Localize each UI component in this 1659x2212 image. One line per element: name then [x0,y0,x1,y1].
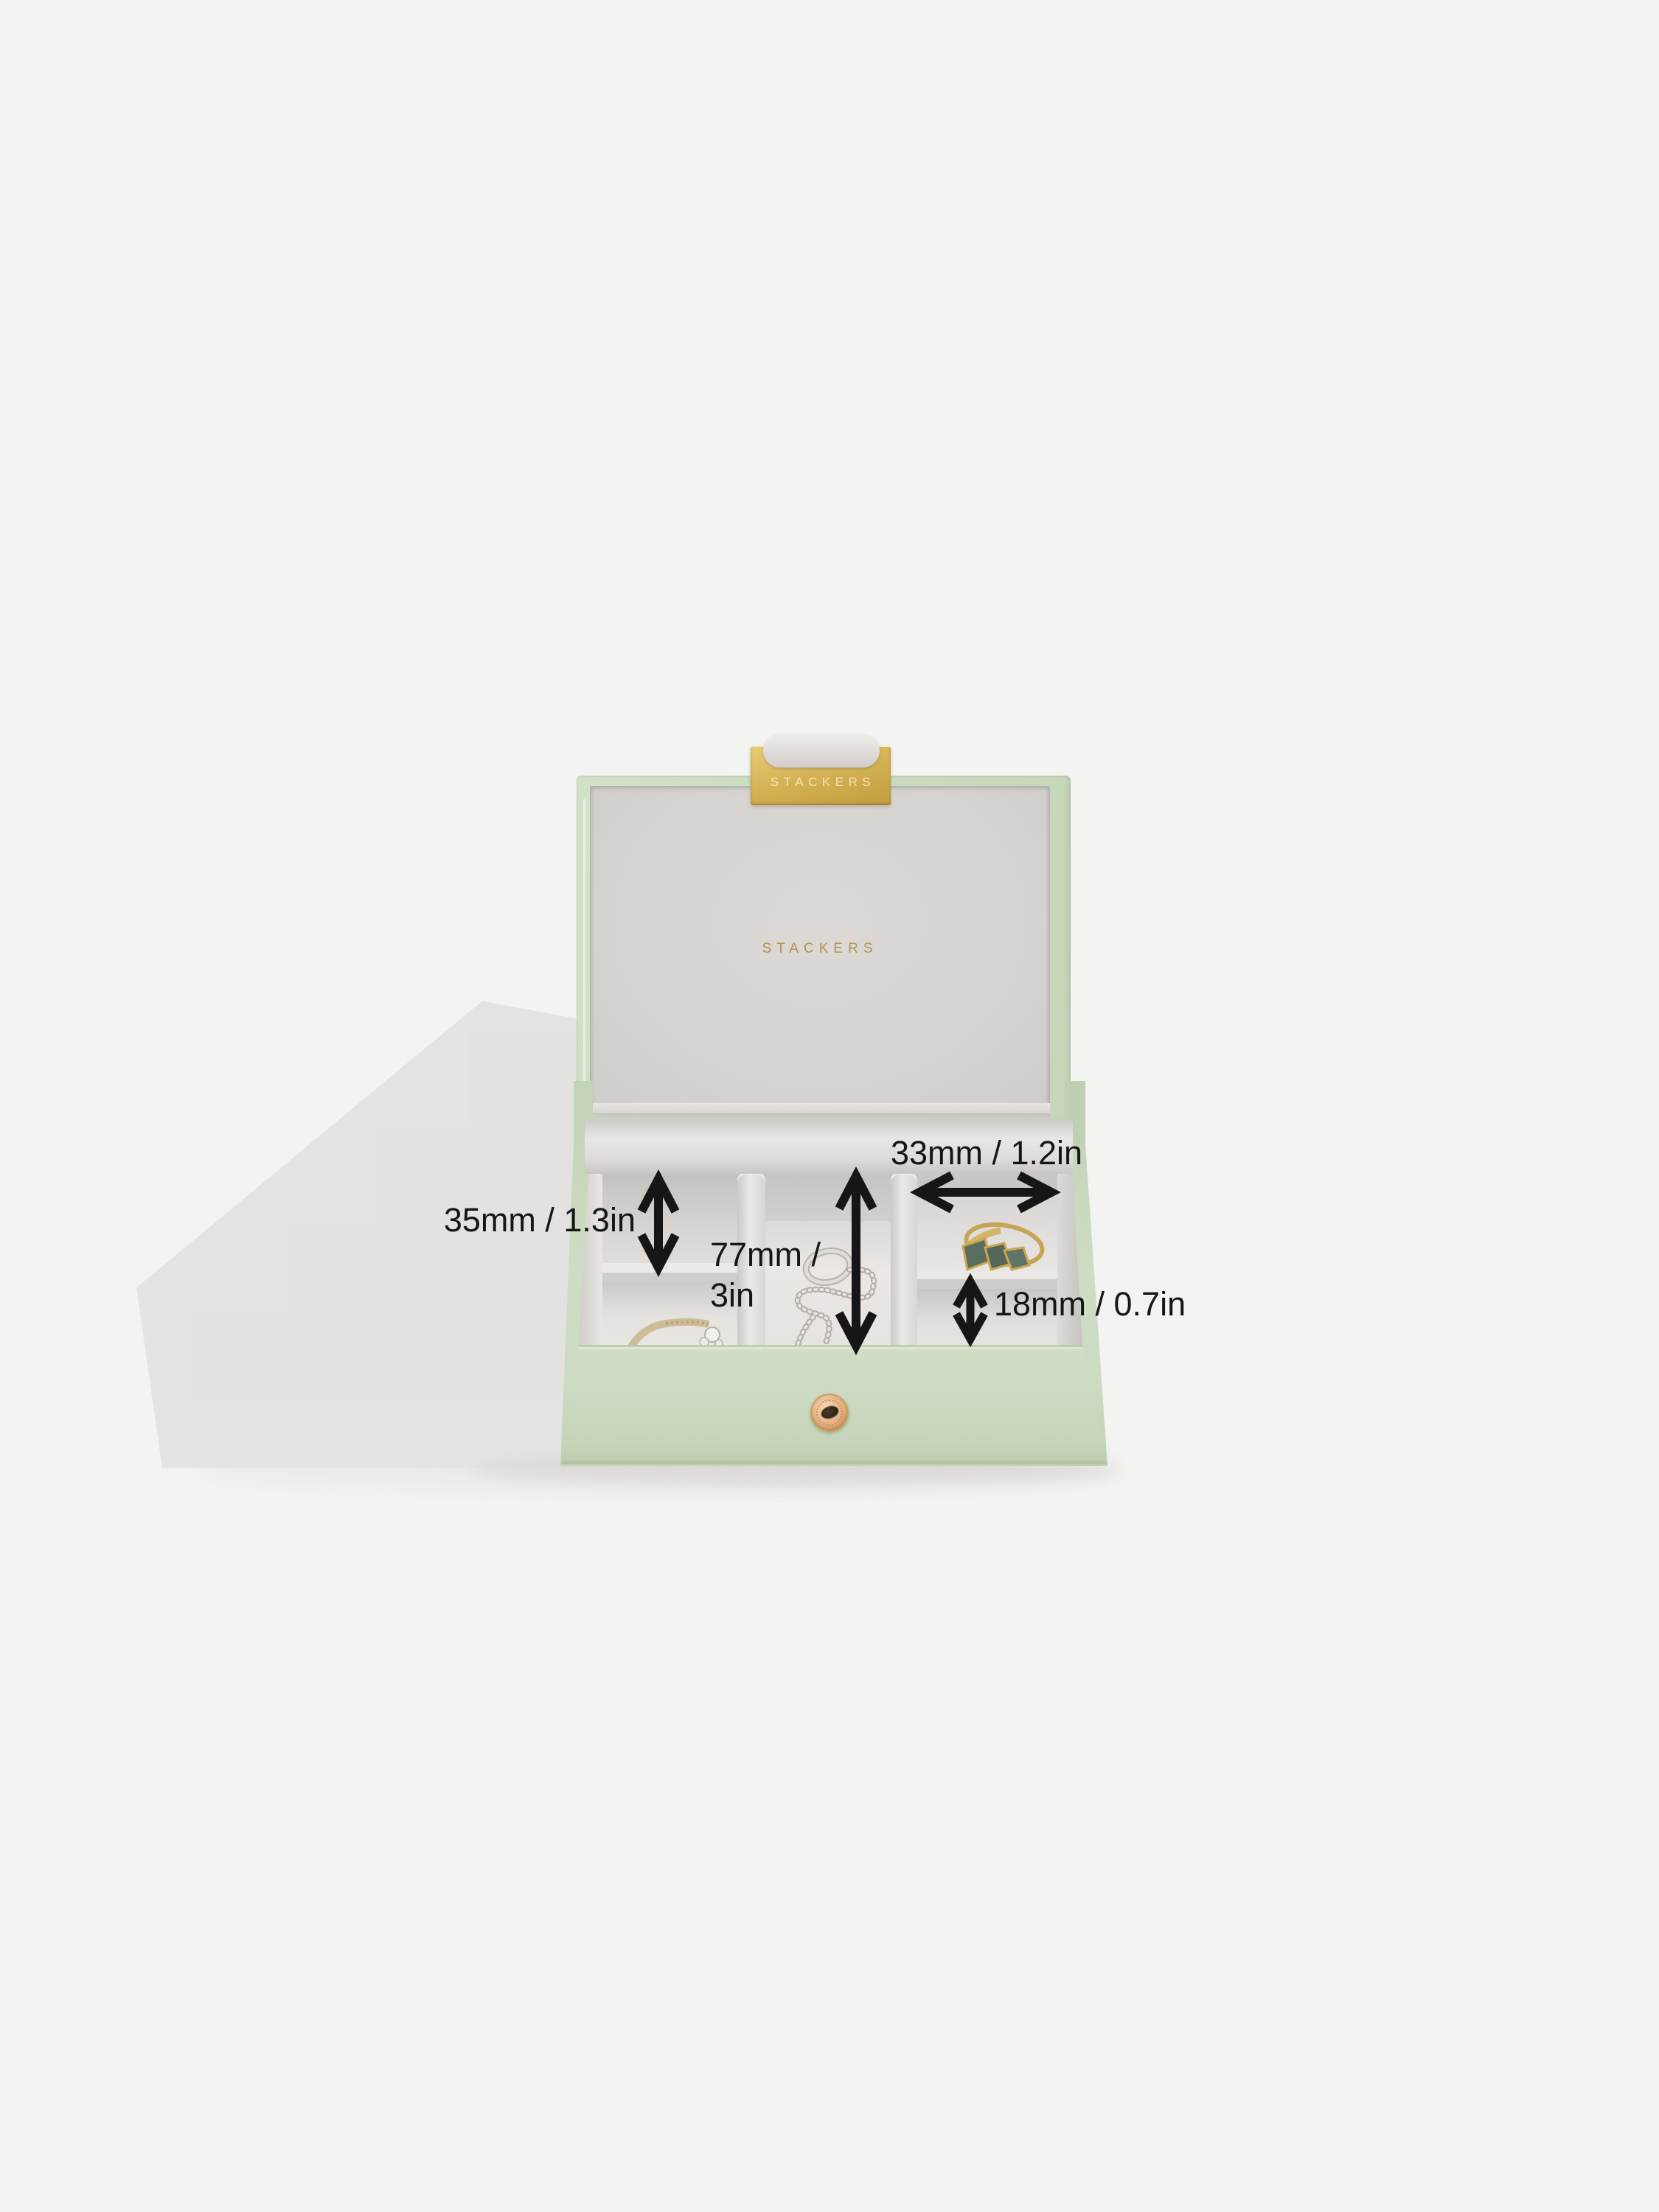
arrow-depth-18mm [956,1281,984,1339]
dimension-label-length-line1: 77mm / [710,1235,821,1275]
product-photo-stage: STACKERS STACKERS [0,0,1659,2212]
arrow-depth-35mm [641,1179,675,1267]
dimension-label-length-line2: 3in [710,1276,754,1315]
dimension-label-small-depth: 18mm / 0.7in [994,1284,1186,1324]
arrow-width-33mm [919,1175,1051,1209]
dimension-arrows [0,0,1659,2212]
dimension-label-depth: 35mm / 1.3in [398,1200,636,1240]
dimension-label-width: 33mm / 1.2in [876,1133,1097,1173]
arrow-length-77mm [839,1176,873,1346]
